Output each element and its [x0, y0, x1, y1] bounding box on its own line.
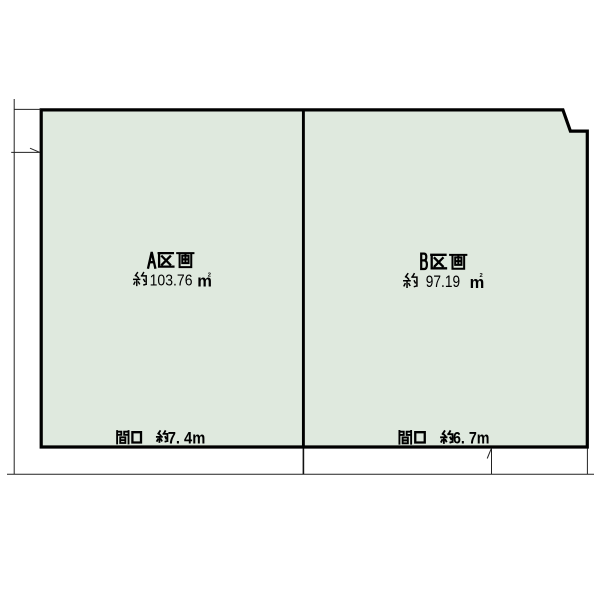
svg-text:7. 4m: 7. 4m — [168, 428, 206, 447]
svg-text:2: 2 — [480, 273, 483, 279]
svg-text:6. 7m: 6. 7m — [453, 428, 490, 447]
svg-text:2: 2 — [208, 272, 211, 278]
svg-text:97.19: 97.19 — [426, 273, 460, 291]
svg-text:103.76: 103.76 — [150, 273, 193, 290]
